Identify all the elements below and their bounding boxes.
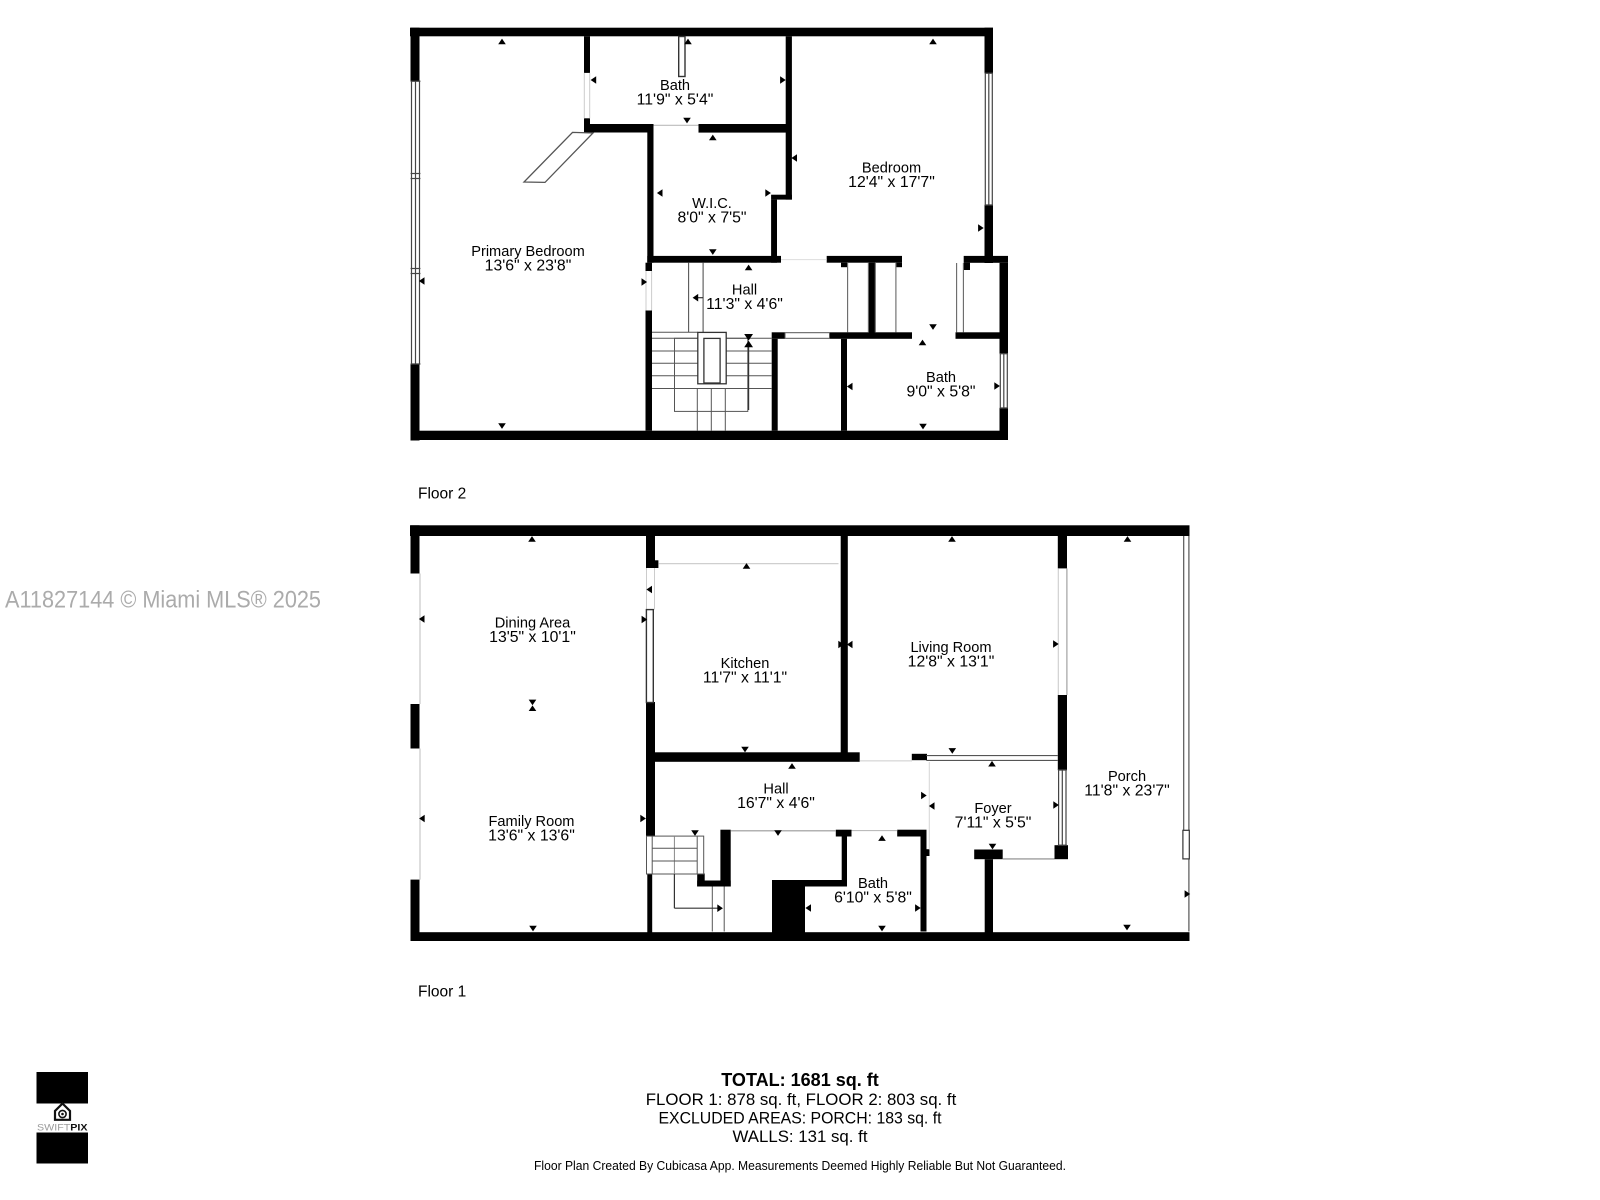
svg-text:12'8" x 13'1": 12'8" x 13'1" xyxy=(908,654,995,671)
svg-text:16'7" x 4'6": 16'7" x 4'6" xyxy=(737,795,815,812)
svg-text:FLOOR 1: 878 sq. ft, FLOOR 2:: FLOOR 1: 878 sq. ft, FLOOR 2: 803 sq. ft xyxy=(646,1090,957,1109)
svg-text:13'6" x 23'8": 13'6" x 23'8" xyxy=(485,257,572,274)
svg-text:11'9" x 5'4": 11'9" x 5'4" xyxy=(637,92,714,109)
svg-text:Floor 2: Floor 2 xyxy=(418,486,466,503)
svg-text:12'4" x 17'7": 12'4" x 17'7" xyxy=(848,174,935,191)
svg-text:A11827144 © Miami MLS® 2025: A11827144 © Miami MLS® 2025 xyxy=(5,587,321,614)
svg-text:11'3" x 4'6": 11'3" x 4'6" xyxy=(706,296,783,313)
svg-text:Floor Plan Created By Cubicasa: Floor Plan Created By Cubicasa App. Meas… xyxy=(534,1158,1066,1173)
svg-text:11'7" x 11'1": 11'7" x 11'1" xyxy=(703,670,787,687)
svg-text:Floor 1: Floor 1 xyxy=(418,984,466,1001)
svg-text:8'0" x 7'5": 8'0" x 7'5" xyxy=(677,210,746,227)
svg-text:SWIFTPIX: SWIFTPIX xyxy=(37,1123,88,1134)
svg-text:7'11" x 5'5": 7'11" x 5'5" xyxy=(955,815,1032,832)
svg-text:TOTAL: 1681 sq. ft: TOTAL: 1681 sq. ft xyxy=(721,1070,879,1090)
svg-text:6'10" x 5'8": 6'10" x 5'8" xyxy=(834,890,912,907)
svg-text:13'6" x 13'6": 13'6" x 13'6" xyxy=(488,828,575,845)
svg-text:WALLS: 131 sq. ft: WALLS: 131 sq. ft xyxy=(733,1127,868,1146)
svg-text:9'0" x 5'8": 9'0" x 5'8" xyxy=(906,384,975,401)
svg-text:EXCLUDED AREAS: PORCH: 183 sq.: EXCLUDED AREAS: PORCH: 183 sq. ft xyxy=(659,1109,942,1128)
svg-text:11'8" x 23'7": 11'8" x 23'7" xyxy=(1084,783,1169,800)
svg-text:13'5" x 10'1": 13'5" x 10'1" xyxy=(489,629,576,646)
